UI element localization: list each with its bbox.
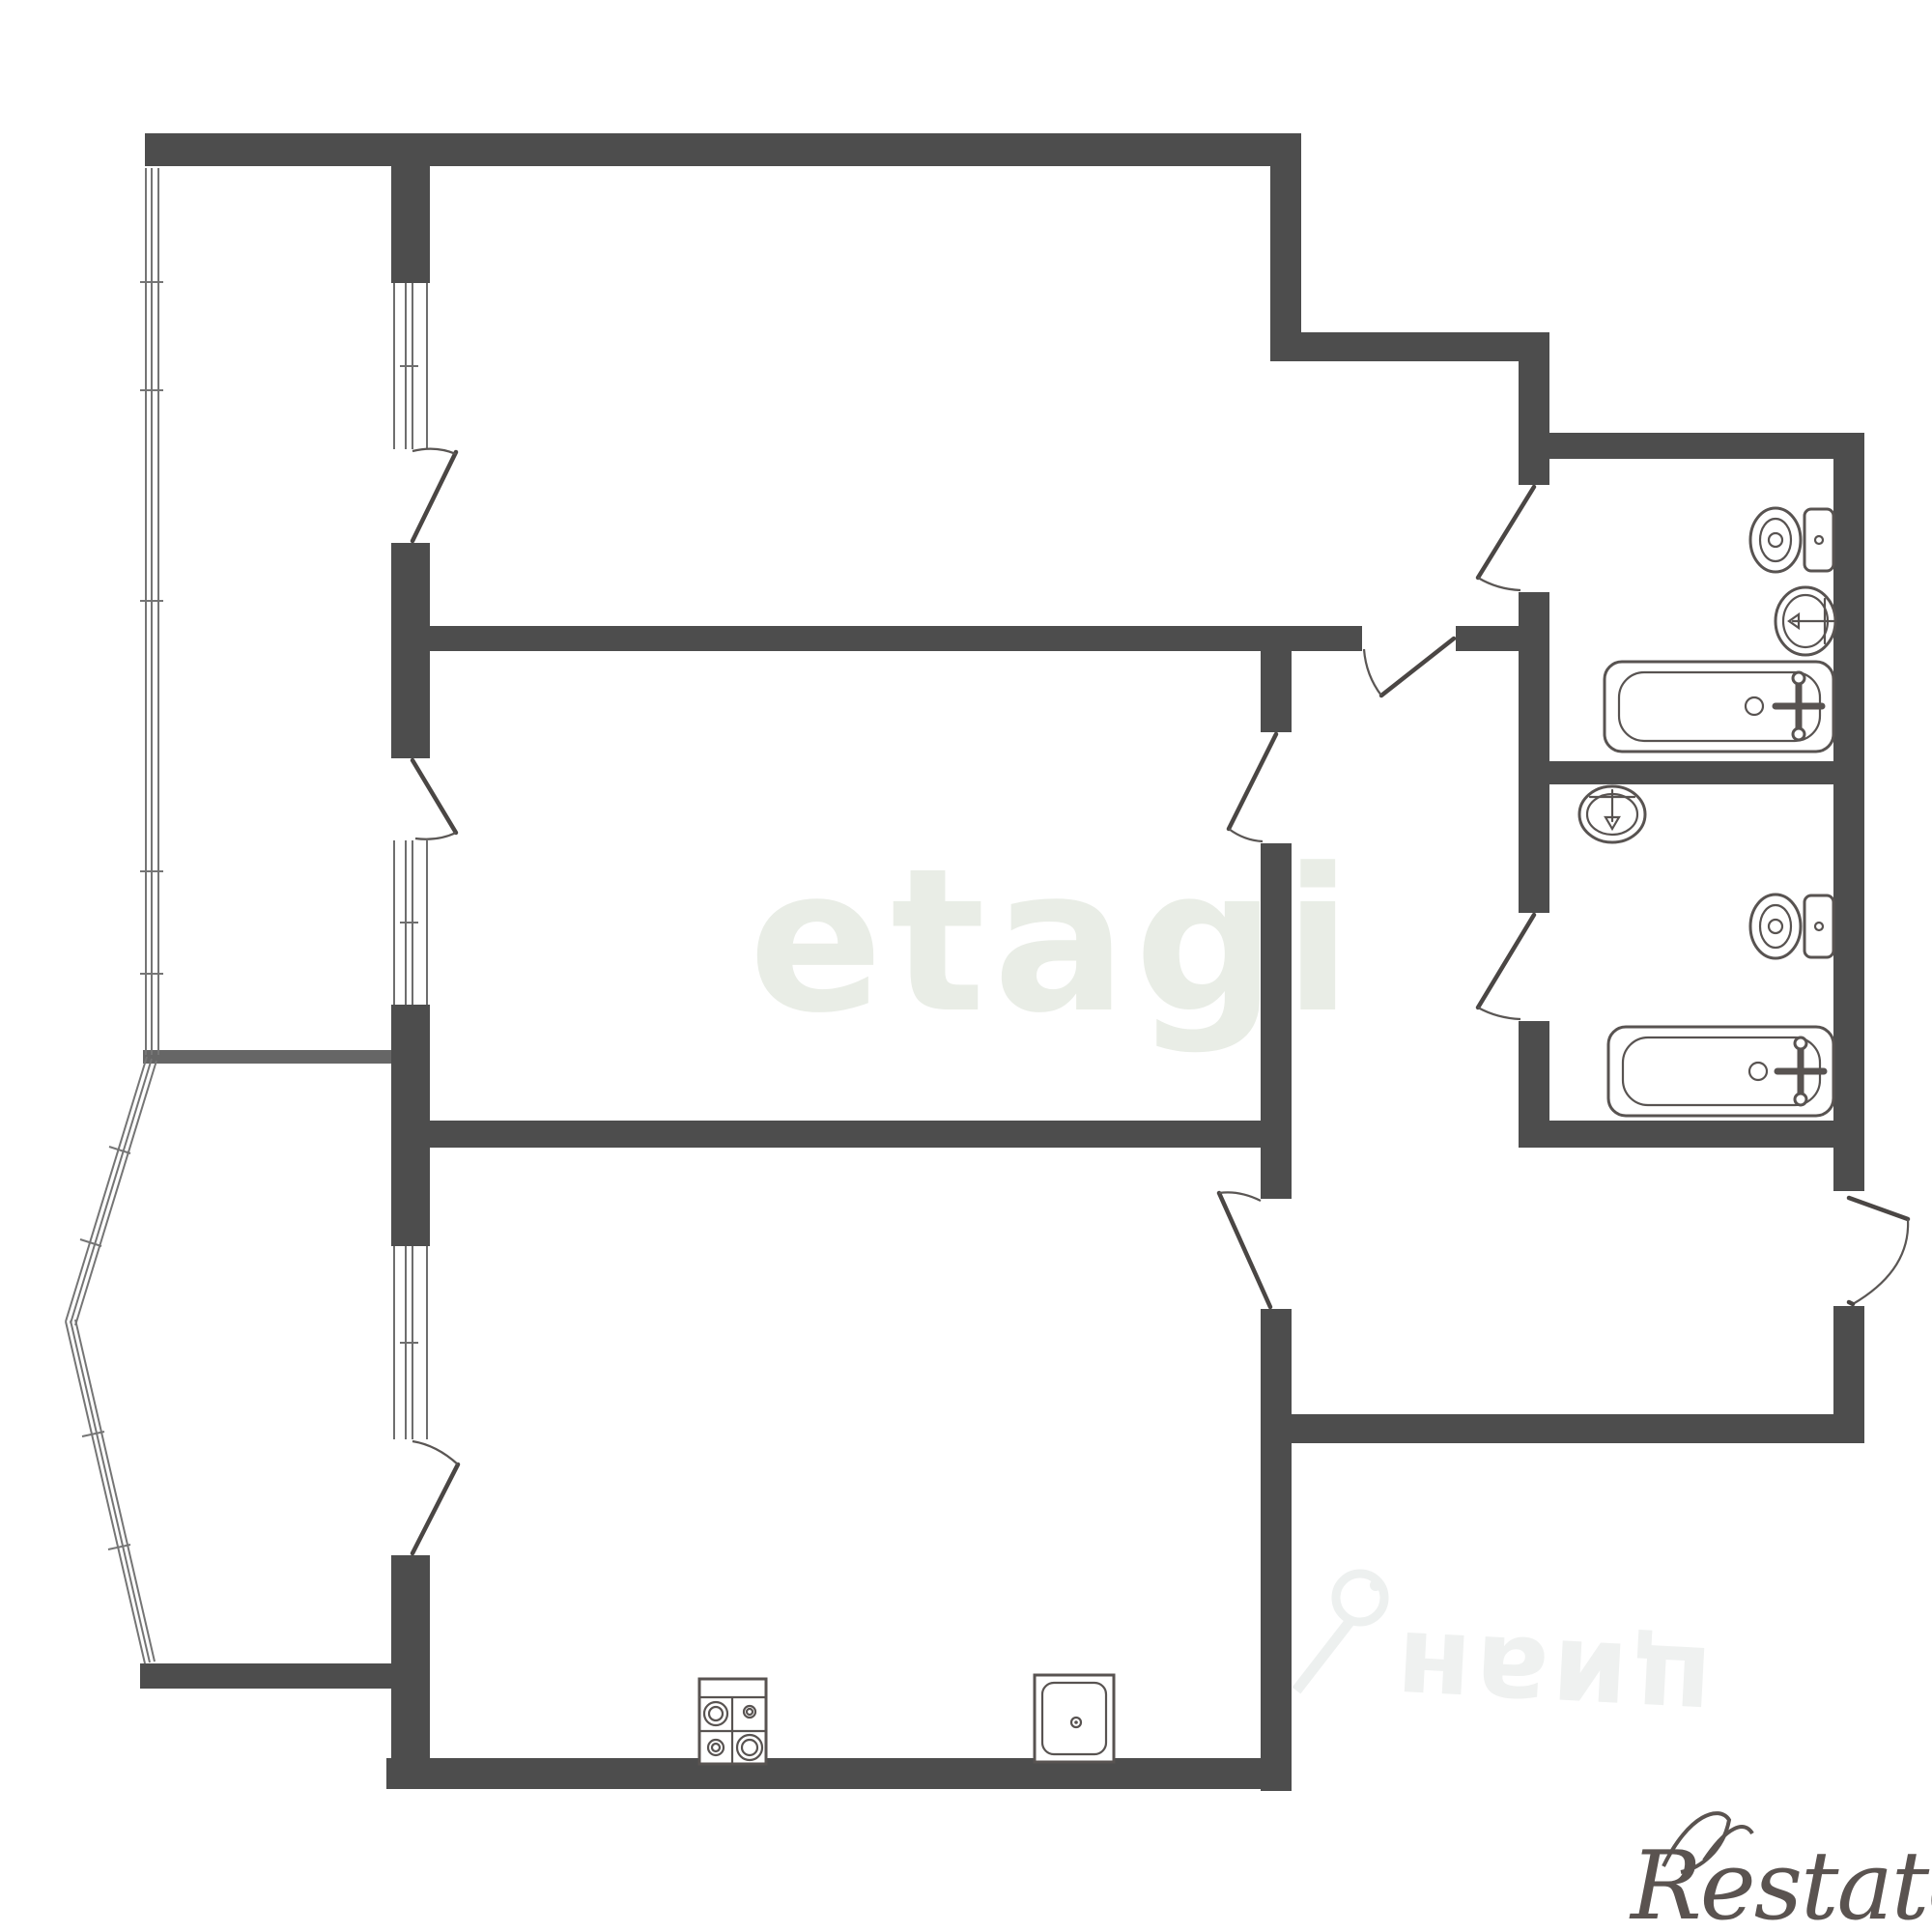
cian-logo-dot-icon xyxy=(1370,1579,1381,1591)
wall-bedroom1-bottom-right-stub xyxy=(1456,626,1549,651)
wall-nook-top xyxy=(1301,332,1549,361)
watermark-cian: циан xyxy=(1296,1574,1715,1747)
floor-plan-canvas: etagi циан Restate xyxy=(0,0,1932,1932)
bay-glazing-line xyxy=(66,1057,147,1321)
door-kitchen-balcony xyxy=(412,1441,458,1553)
wall-left-segment-b xyxy=(391,543,430,758)
cian-logo-needle-icon xyxy=(1296,1622,1350,1690)
door-entrance xyxy=(1849,1198,1908,1304)
door-living-room-entry xyxy=(1229,734,1276,841)
door-bathroom2 xyxy=(1478,915,1534,1019)
wall-left-segment-c xyxy=(391,1005,430,1246)
wall-corridor-left-b xyxy=(1261,843,1292,1199)
floor-plan-page: etagi циан Restate xyxy=(0,0,1932,1932)
wall-kitchen-right xyxy=(1261,1309,1292,1791)
wall-left-segment-a xyxy=(391,166,430,283)
door-bedroom1-entry xyxy=(1364,639,1454,696)
bay-glazing-line xyxy=(71,1059,152,1323)
wall-bedroom1-right-step xyxy=(1270,166,1301,361)
wall-balcony-sill xyxy=(143,1050,391,1064)
bathtub-bathroom2 xyxy=(1608,1027,1833,1116)
watermark-restate-text: Restate xyxy=(1629,1832,1932,1932)
bay-glazing-line xyxy=(75,1061,156,1325)
wall-exterior-right-upper xyxy=(1833,433,1864,1191)
bay-glazing-line xyxy=(75,1320,155,1662)
watermark-restate: Restate xyxy=(1629,1813,1932,1932)
door-bedroom1-balcony xyxy=(412,449,456,541)
bay-glazing-line xyxy=(71,1321,150,1662)
wall-living-kitchen-divider xyxy=(430,1121,1261,1148)
balcony-glazing xyxy=(66,168,163,1663)
washbasin-bathroom2 xyxy=(1579,786,1645,842)
wall-bay-bottom xyxy=(140,1663,391,1689)
wall-bathroom1-top xyxy=(1546,433,1864,459)
door-bathroom1 xyxy=(1478,487,1534,590)
wall-left-segment-d xyxy=(391,1555,430,1789)
door-kitchen-entry xyxy=(1219,1192,1270,1307)
wall-exterior-top xyxy=(145,133,1301,166)
wall-corridor-bottom xyxy=(1261,1414,1864,1443)
kitchen-sink xyxy=(1035,1675,1114,1762)
wall-nook-right-upper xyxy=(1519,361,1549,485)
watermark-cian-text: циан xyxy=(1389,1605,1715,1747)
toilet-bathroom1 xyxy=(1750,508,1833,572)
wall-bedroom1-bottom xyxy=(430,626,1362,651)
stove xyxy=(699,1679,766,1764)
window-bedroom1 xyxy=(394,283,427,449)
window-living-room xyxy=(394,840,427,1005)
window-kitchen xyxy=(394,1246,427,1439)
wall-bathroom2-bottom xyxy=(1519,1121,1864,1148)
bathtub-bathroom1 xyxy=(1605,662,1833,752)
door-living-balcony xyxy=(412,760,456,839)
wall-kitchen-bottom xyxy=(386,1758,1292,1789)
washbasin-bathroom1 xyxy=(1776,587,1835,655)
toilet-bathroom2 xyxy=(1750,895,1833,958)
bay-glazing-line xyxy=(66,1321,145,1663)
wall-bathroom-divider xyxy=(1519,761,1864,784)
